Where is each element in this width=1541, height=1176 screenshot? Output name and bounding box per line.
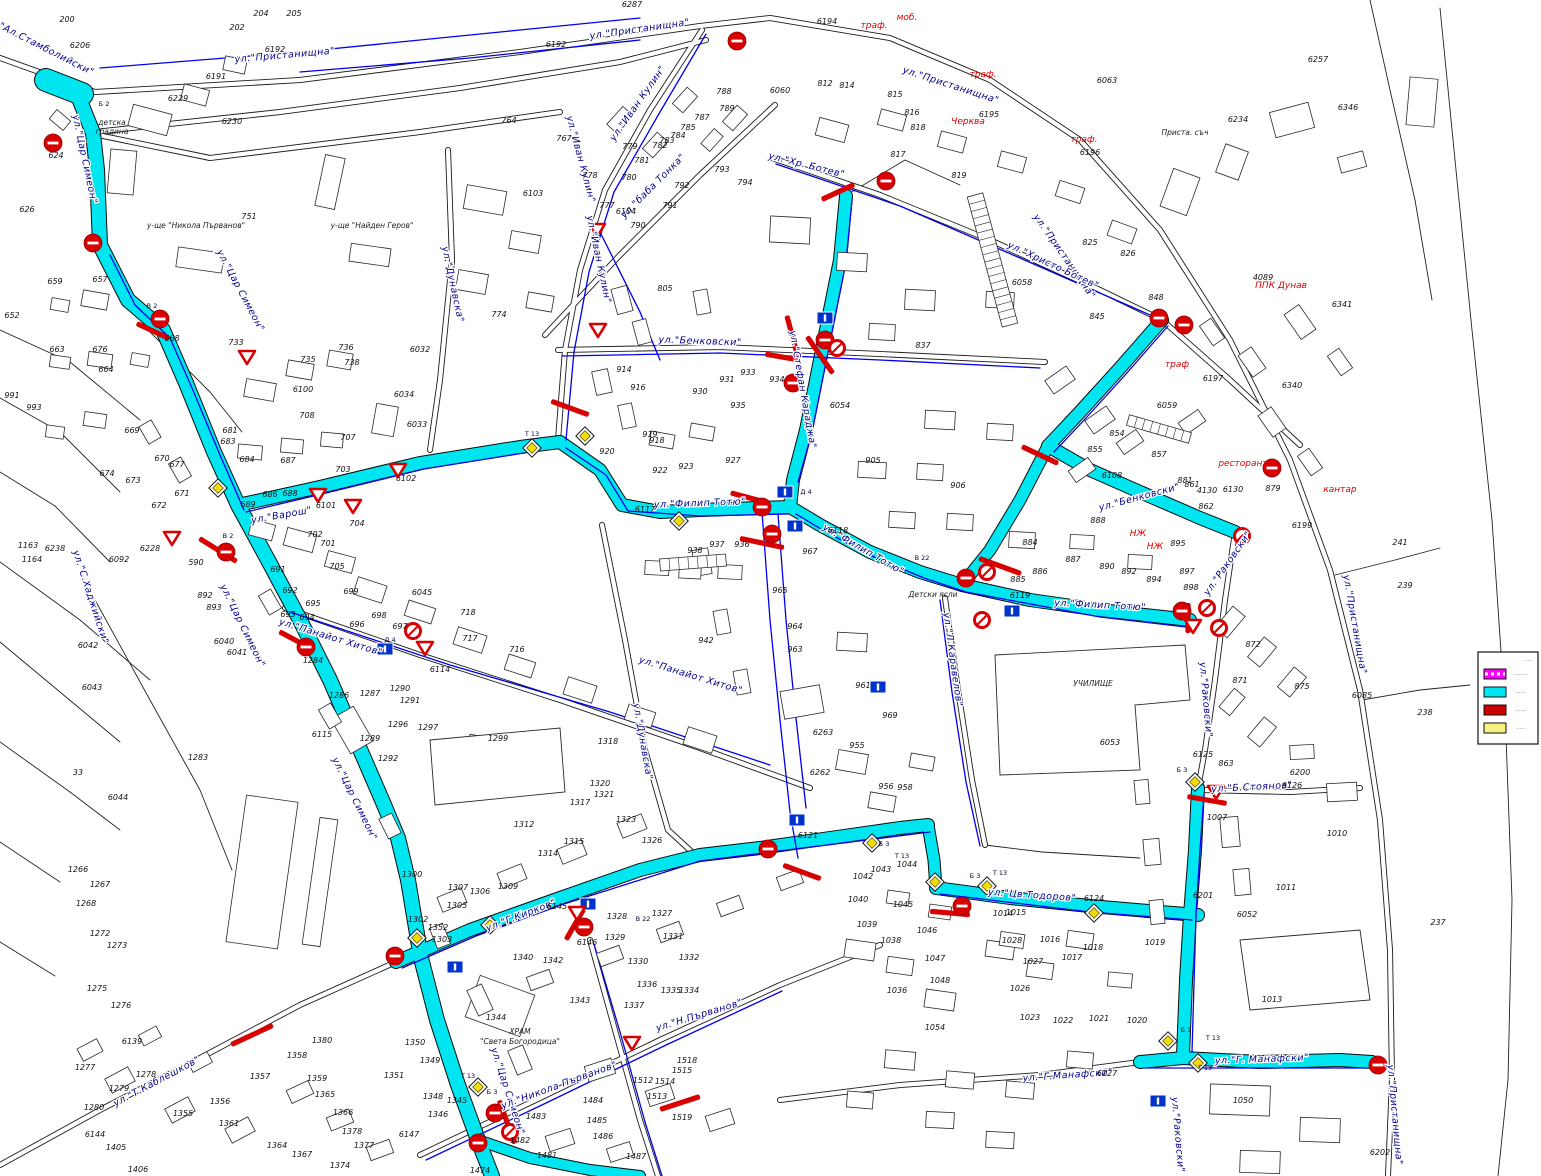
parcel-number: 1028 <box>1002 936 1022 945</box>
building <box>904 289 935 311</box>
parcel-number: 241 <box>1392 538 1407 547</box>
building <box>877 109 906 131</box>
sign-code-label: Т 13 <box>460 1072 475 1080</box>
no-entry-bar <box>957 905 968 908</box>
sign-code-label: Б 3 <box>879 840 890 848</box>
parcel-number: 875 <box>1294 682 1309 691</box>
building <box>1143 838 1161 865</box>
building <box>886 956 914 975</box>
parcel-number: 1484 <box>583 1096 603 1105</box>
no-entry-bar <box>490 1112 501 1115</box>
no-entry-bar <box>961 577 972 580</box>
parcel-number: 6044 <box>108 793 128 802</box>
parcel-number: 890 <box>1099 562 1114 571</box>
parcel-number: 777 <box>599 201 615 210</box>
large-building <box>1240 930 1370 1010</box>
parcel-number: 964 <box>787 622 802 631</box>
parcel-number: 6340 <box>1282 381 1302 390</box>
parcel-number: 684 <box>239 455 254 464</box>
parcel-number: 898 <box>1183 583 1198 592</box>
building <box>1055 180 1085 203</box>
parcel-number: 4130 <box>1197 486 1217 495</box>
street-label: ул."Варош" <box>249 505 312 527</box>
parcel-number: 668 <box>164 334 179 343</box>
poi-label-red: Черква <box>951 117 985 127</box>
parcel-number: 790 <box>630 221 645 230</box>
building <box>83 412 107 429</box>
building <box>705 1108 735 1131</box>
poi-label: градина <box>96 127 129 136</box>
parcel-number: 697 <box>392 622 408 631</box>
building <box>987 423 1014 440</box>
building <box>611 285 633 314</box>
parcel-number: 688 <box>282 489 297 498</box>
building <box>945 1071 974 1089</box>
parcel-number: 967 <box>802 547 818 556</box>
parcel-number: 930 <box>692 387 707 396</box>
building <box>815 117 849 142</box>
building <box>50 298 70 313</box>
poi-label: "Света Богородица" <box>480 1037 560 1046</box>
building <box>835 750 868 775</box>
no-entry-bar <box>390 955 401 958</box>
parcel-number: 6114 <box>430 665 450 674</box>
parcel-number: 789 <box>719 104 734 113</box>
parcel-number: 1328 <box>607 912 627 921</box>
parcel-number: 1275 <box>87 984 107 993</box>
no-entry-bar <box>881 180 892 183</box>
parcel-number: 6102 <box>396 474 416 483</box>
parcel-number: 707 <box>340 433 356 442</box>
parcel-number: 1019 <box>1145 938 1165 947</box>
parcel-number: 905 <box>865 456 880 465</box>
parcel-number: 1022 <box>1053 1016 1073 1025</box>
yield-sign-icon <box>164 532 180 545</box>
parcel-number: 1374 <box>330 1161 350 1170</box>
parcel-number: 1021 <box>1089 1014 1109 1023</box>
poi-label-red: ППК Дунав <box>1255 281 1307 291</box>
parcel-number: 1291 <box>400 696 420 705</box>
building <box>917 463 944 480</box>
no-entry-bar <box>763 848 774 851</box>
parcel-number: 815 <box>887 90 902 99</box>
parcel-number: 6052 <box>1237 910 1257 919</box>
parcel-number: 704 <box>349 519 364 528</box>
parcel-number: 626 <box>19 205 34 214</box>
parcel-number: 6127 <box>1097 1069 1118 1078</box>
no-entry-bar <box>820 339 831 342</box>
parcel-number: 1364 <box>267 1141 287 1150</box>
parcel-number: 1378 <box>342 1127 362 1136</box>
closed-road-bar <box>230 1023 274 1047</box>
parcel-number: 6059 <box>1157 401 1177 410</box>
parcel-number: 1327 <box>652 909 673 918</box>
parcel-number: 1352 <box>428 923 448 932</box>
parcel-number: 1405 <box>106 1143 126 1152</box>
parcel-number: 1342 <box>543 956 563 965</box>
map: ул."Ал.Стамболийски"ул."Пристанищна"ул."… <box>0 0 1541 1176</box>
parcel-number: 6139 <box>122 1037 142 1046</box>
parcel-number: 794 <box>737 178 752 187</box>
parcel-number: 1266 <box>68 865 88 874</box>
route-street <box>790 507 962 585</box>
parcel-number: 1026 <box>1010 984 1030 993</box>
parcel-number: 780 <box>621 173 636 182</box>
parcel-number: 718 <box>460 608 475 617</box>
parcel-number: 879 <box>1265 484 1280 493</box>
parcel-number: 674 <box>99 469 114 478</box>
parcel-number: 6058 <box>1012 278 1032 287</box>
sign-code-label: Т 13 <box>1197 1064 1212 1072</box>
parcel-number: 1406 <box>128 1165 148 1174</box>
yield-sign-icon <box>590 324 606 337</box>
poi-label-red: моб. <box>897 13 918 23</box>
parcel-number: 1278 <box>136 1070 156 1079</box>
parcel-number: 6234 <box>1228 115 1248 124</box>
parcel-number: 1332 <box>679 953 699 962</box>
building <box>924 989 956 1011</box>
parcel-number: 6130 <box>1223 485 1243 494</box>
parcel-number: 936 <box>734 540 749 549</box>
parcel-number: 1321 <box>594 790 614 799</box>
map-canvas: ул."Ал.Стамболийски"ул."Пристанищна"ул."… <box>0 0 1541 1176</box>
parcel-number: 691 <box>270 565 285 574</box>
parcel-number: 689 <box>240 500 255 509</box>
parcel-number: 767 <box>556 134 572 143</box>
parcel-number: 845 <box>1089 312 1104 321</box>
road-fill <box>558 30 702 440</box>
parcel-number: 701 <box>320 539 335 548</box>
building <box>844 939 876 961</box>
building <box>632 319 652 346</box>
sign-code-label: В 22 <box>915 554 930 562</box>
parcel-number: 1036 <box>887 986 907 995</box>
parcel-number: 733 <box>228 338 243 347</box>
building <box>526 292 554 312</box>
parcel-number: 1518 <box>677 1056 697 1065</box>
parcel-number: 6238 <box>45 544 65 553</box>
parcel-number: 793 <box>714 165 729 174</box>
building <box>244 379 277 402</box>
parcel-number: 6101 <box>316 501 336 510</box>
building <box>837 252 868 272</box>
parcel-number: 6063 <box>1097 76 1117 85</box>
parcel-number: 6192 <box>546 40 566 49</box>
parcel-number: 6201 <box>1193 891 1213 900</box>
parcel-number: 200 <box>59 15 74 24</box>
building <box>1216 144 1249 180</box>
building <box>868 792 896 812</box>
parcel-number: 677 <box>169 460 185 469</box>
parcel-number: 204 <box>253 9 268 18</box>
parcel-number: 735 <box>300 355 315 364</box>
parcel-number: 923 <box>678 462 693 471</box>
parcel-number: 1343 <box>570 996 590 1005</box>
building <box>837 632 868 652</box>
building <box>716 895 743 916</box>
minor-road <box>0 842 60 882</box>
parcel-number: 1365 <box>315 1090 335 1099</box>
parcel-number: 6041 <box>227 648 247 657</box>
parcel-number: 239 <box>1397 581 1412 590</box>
parcel-number: 1486 <box>593 1132 613 1141</box>
building <box>1337 151 1366 173</box>
building <box>139 420 161 444</box>
sign-code-label: Д 4 <box>384 636 395 644</box>
minor-road <box>1370 0 1432 300</box>
no-entry-bar <box>732 40 743 43</box>
parcel-number: 785 <box>680 123 695 132</box>
parcel-number: 1286 <box>329 691 349 700</box>
parcel-number: 6147 <box>399 1130 420 1139</box>
parcel-number: 805 <box>657 284 672 293</box>
parcel-number: 6262 <box>810 768 830 777</box>
poi-label: детска <box>97 118 126 127</box>
legend-item-label: ······· <box>1515 708 1527 714</box>
parcel-number: 664 <box>98 365 113 374</box>
building <box>672 87 697 113</box>
building <box>618 403 637 429</box>
poi-label-red: траф <box>1165 360 1189 370</box>
parcel-number: 6040 <box>214 637 234 646</box>
minor-road <box>1362 685 1470 700</box>
parcel-number: 1514 <box>655 1077 675 1086</box>
poi-label-red: траф. <box>969 70 996 80</box>
building <box>1070 534 1095 549</box>
sign-code-label: Б 2 <box>99 100 110 108</box>
legend-item-label: ········· <box>1514 672 1529 678</box>
info-sign-glyph <box>384 646 386 653</box>
parcel-number: 1483 <box>526 1112 546 1121</box>
parcel-number: 738 <box>344 358 359 367</box>
legend-swatch <box>1484 705 1506 715</box>
parcel-number: 1366 <box>333 1108 353 1117</box>
parcel-number: 751 <box>241 212 256 221</box>
parcel-number: 1323 <box>616 815 636 824</box>
parcel-number: 774 <box>491 310 506 319</box>
parcel-number: 1283 <box>188 753 208 762</box>
legend-item-label: ······ <box>1516 726 1526 732</box>
road-casing <box>558 30 702 440</box>
parcel-number: 6117 <box>635 505 656 514</box>
parcel-number: 782 <box>652 141 667 150</box>
parcel-number: 817 <box>890 150 906 159</box>
parcel-number: 778 <box>582 171 597 180</box>
street-label: ул."Цар Симеон" <box>214 247 267 333</box>
building <box>1134 779 1150 804</box>
parcel-number: 922 <box>652 466 667 475</box>
parcel-number: 6060 <box>770 86 790 95</box>
parcel-number: 6121 <box>798 831 818 840</box>
parcel-number: 1314 <box>538 849 558 858</box>
parcel-number: 624 <box>48 151 63 160</box>
parcel-number: 6202 <box>1370 1148 1390 1157</box>
sign-code-label: Б 3 <box>1181 1026 1192 1034</box>
parcel-number: 1007 <box>1207 813 1228 822</box>
parcel-number: 837 <box>915 341 931 350</box>
parcel-number: 1345 <box>447 1096 467 1105</box>
poi-label: Детски ясли <box>907 590 957 599</box>
parcel-number: 914 <box>616 365 631 374</box>
no-entry-bar <box>1179 324 1190 327</box>
building <box>526 969 553 990</box>
parcel-number: 892 <box>1121 567 1136 576</box>
parcel-number: 1013 <box>1262 995 1282 1004</box>
parcel-number: 1287 <box>360 689 381 698</box>
parcel-number: 652 <box>4 311 19 320</box>
building <box>592 369 613 396</box>
parcel-number: 672 <box>151 501 166 510</box>
no-entry-bar <box>767 533 778 536</box>
parcel-number: 699 <box>343 587 358 596</box>
parcel-number: 1284 <box>303 656 323 665</box>
parcel-number: 6200 <box>1290 768 1310 777</box>
parcel-number: 205 <box>286 9 301 18</box>
parcel-number: 673 <box>125 476 140 485</box>
building <box>683 727 717 753</box>
street-label: ул."Л.Каравелов" <box>940 611 964 708</box>
parcel-number: 1348 <box>423 1092 443 1101</box>
building <box>884 1050 915 1071</box>
building <box>45 425 64 439</box>
building <box>1066 1051 1093 1069</box>
parcel-number: 1337 <box>624 1001 645 1010</box>
parcel-number: 1320 <box>590 779 610 788</box>
minor-road <box>0 642 120 742</box>
parcel-number: 855 <box>1087 445 1102 454</box>
parcel-number: 848 <box>1148 293 1163 302</box>
street-label: ул."Панайот Хитов" <box>637 654 744 696</box>
parcel-number: 1317 <box>570 798 591 807</box>
parcel-number: 1380 <box>312 1036 332 1045</box>
building <box>947 513 974 530</box>
parcel-number: 1305 <box>447 901 467 910</box>
parcel-number: 708 <box>299 411 314 420</box>
parcel-number: 894 <box>1146 575 1161 584</box>
parcel-number: 969 <box>882 711 897 720</box>
parcel-number: 1482 <box>510 1136 530 1145</box>
minor-road <box>985 845 1140 858</box>
no-entry-bar <box>155 318 166 321</box>
parcel-number: 6092 <box>109 555 129 564</box>
parcel-number: 1292 <box>378 754 398 763</box>
parcel-number: 1312 <box>514 820 534 829</box>
parcel-number: 1016 <box>1040 935 1060 944</box>
parcel-number: 935 <box>730 401 745 410</box>
parcel-number: 1309 <box>498 882 518 891</box>
parcel-number: 6043 <box>82 683 102 692</box>
parcel-number: 963 <box>787 645 802 654</box>
parcel-number: 1267 <box>90 880 111 889</box>
building <box>302 817 338 946</box>
parcel-number: 671 <box>174 489 189 498</box>
building <box>1300 1117 1341 1142</box>
legend-swatch <box>1484 687 1506 697</box>
parcel-number: 862 <box>1198 502 1213 511</box>
parcel-number: 1040 <box>848 895 868 904</box>
legend-swatch <box>1484 723 1506 733</box>
legend-title: ····· <box>1524 658 1532 664</box>
parcel-number: 717 <box>462 634 478 643</box>
parcel-number: 1277 <box>75 1063 96 1072</box>
parcel-number: 1297 <box>418 723 439 732</box>
parcel-number: 1485 <box>587 1116 607 1125</box>
parcel-number: 1340 <box>513 953 533 962</box>
building <box>1240 1150 1281 1173</box>
parcel-number: 659 <box>47 277 62 286</box>
parcel-number: 897 <box>1179 567 1195 576</box>
parcel-number: 1359 <box>307 1074 327 1083</box>
parcel-number: 590 <box>188 558 203 567</box>
parcel-number: 1303 <box>432 935 452 944</box>
no-entry-bar <box>48 142 59 145</box>
building <box>1248 717 1277 747</box>
building <box>869 323 896 340</box>
parcel-number: 819 <box>951 171 966 180</box>
poi-label: ХРАМ <box>508 1027 531 1036</box>
parcel-number: 965 <box>772 586 787 595</box>
parcel-number: 670 <box>154 454 169 463</box>
legend-item-label: ······· <box>1515 690 1527 696</box>
parcel-number: 6124 <box>1084 894 1104 903</box>
parcel-number: 6191 <box>206 72 226 81</box>
building <box>596 945 623 966</box>
parcel-number: 1318 <box>598 737 618 746</box>
parcel-number: 6197 <box>1203 374 1224 383</box>
parcel-number: 764 <box>501 116 516 125</box>
parcel-number: 6126 <box>1282 781 1302 790</box>
parcel-number: 825 <box>1082 238 1097 247</box>
parcel-number: 1474 <box>470 1166 490 1175</box>
building <box>77 1039 103 1062</box>
parcel-number: 993 <box>26 403 41 412</box>
building <box>404 600 436 624</box>
parcel-number: 6085 <box>1352 691 1372 700</box>
poi-label-red: ресторант <box>1217 459 1268 469</box>
parcel-number: 6144 <box>85 1130 105 1139</box>
parcel-number: 6100 <box>293 385 313 394</box>
building <box>545 1128 575 1151</box>
sign-code-label: Б 3 <box>487 1088 498 1096</box>
building <box>509 231 542 254</box>
building <box>713 609 731 635</box>
parcel-number: 886 <box>1032 567 1047 576</box>
parcel-number: 202 <box>229 23 244 32</box>
building <box>463 185 507 216</box>
street-label: ул."Раковски" <box>1197 661 1215 738</box>
building <box>1238 347 1266 377</box>
building <box>937 131 966 153</box>
building <box>846 1091 873 1109</box>
building <box>780 685 824 720</box>
parcel-number: 884 <box>1022 538 1037 547</box>
building <box>1107 220 1137 244</box>
no-entry-bar <box>88 242 99 245</box>
poi-label-red: НЖ <box>1130 529 1147 539</box>
route-street <box>962 446 1048 585</box>
parcel-number: 1276 <box>111 1001 131 1010</box>
poi-label-red: траф. <box>1070 135 1097 145</box>
parcel-number: 1315 <box>564 837 584 846</box>
sign-code-label: Т 13 <box>1205 1034 1220 1042</box>
parcel-number: 1349 <box>420 1056 440 1065</box>
parcel-number: 906 <box>950 481 965 490</box>
parcel-number: 6146 <box>577 938 597 947</box>
info-sign-glyph <box>1157 1098 1159 1105</box>
building <box>925 410 956 430</box>
parcel-number: 1044 <box>897 860 917 869</box>
parcel-number: 702 <box>307 530 322 539</box>
